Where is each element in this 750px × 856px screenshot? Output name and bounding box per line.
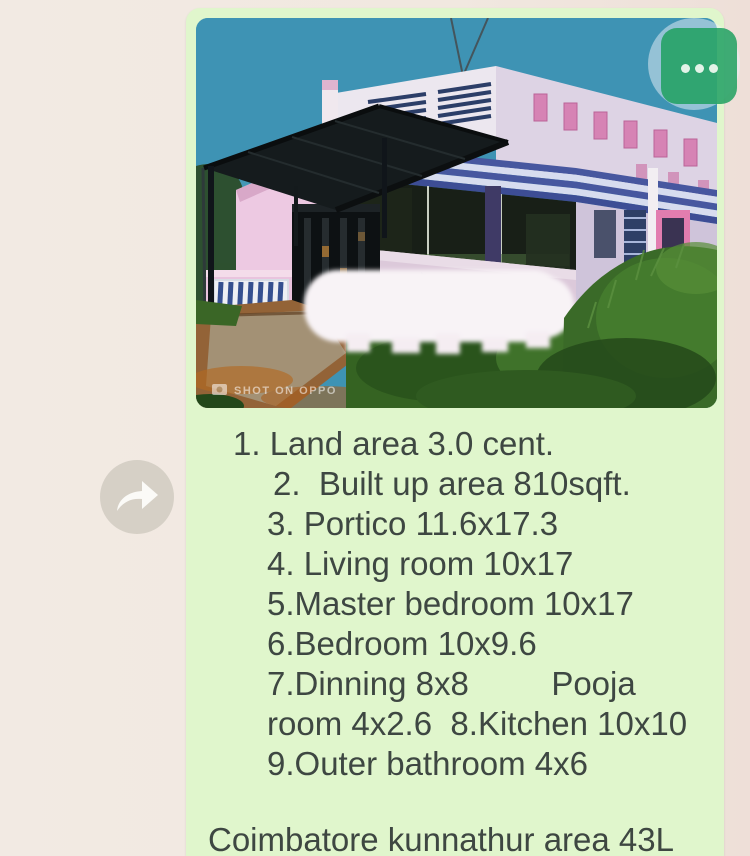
more-options-button[interactable] xyxy=(661,28,737,104)
more-dots-icon xyxy=(681,64,690,73)
list-line: room 4x2.6 8.Kitchen 10x10 xyxy=(186,704,724,744)
message-bubble[interactable]: SHOT ON OPPO 1. Land area 3.0 cent. 2. B… xyxy=(186,8,724,856)
list-line: 2. Built up area 810sqft. xyxy=(186,464,724,504)
house-photo[interactable]: SHOT ON OPPO xyxy=(196,18,717,408)
list-line: 1. Land area 3.0 cent. xyxy=(186,424,724,464)
watermark-text: SHOT ON OPPO xyxy=(234,385,337,397)
more-dots-icon xyxy=(709,64,718,73)
forward-arrow-icon xyxy=(115,477,159,517)
list-line: 9.Outer bathroom 4x6 xyxy=(186,744,724,784)
location-price-text: Coimbatore kunnathur area 43L xyxy=(208,820,674,856)
list-line: 7.Dinning 8x8 Pooja xyxy=(186,664,724,704)
list-line: 6.Bedroom 10x9.6 xyxy=(186,624,724,664)
censor-blob xyxy=(304,270,574,354)
list-line: 4. Living room 10x17 xyxy=(186,544,724,584)
list-line: 5.Master bedroom 10x17 xyxy=(186,584,724,624)
house-photo-scene: SHOT ON OPPO xyxy=(196,18,717,408)
forward-button[interactable] xyxy=(100,460,174,534)
property-list: 1. Land area 3.0 cent. 2. Built up area … xyxy=(186,424,724,784)
list-line: 3. Portico 11.6x17.3 xyxy=(186,504,724,544)
more-dots-icon xyxy=(695,64,704,73)
